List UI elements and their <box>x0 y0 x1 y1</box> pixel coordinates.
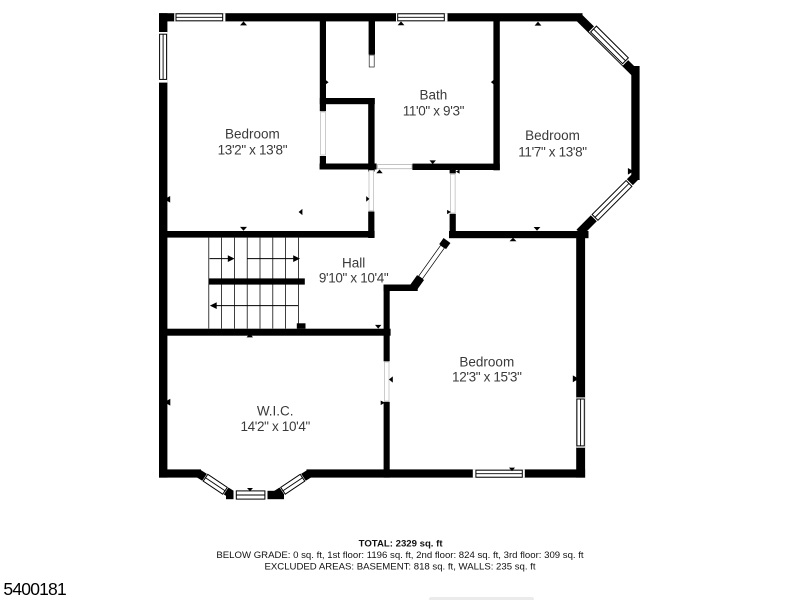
svg-text:W.I.C.: W.I.C. <box>257 403 294 418</box>
svg-text:12'3" x 15'3": 12'3" x 15'3" <box>452 370 522 385</box>
svg-text:Bedroom: Bedroom <box>225 126 280 141</box>
svg-text:11'0" x 9'3": 11'0" x 9'3" <box>403 103 465 118</box>
svg-text:Bedroom: Bedroom <box>459 355 514 370</box>
svg-text:Bedroom: Bedroom <box>525 128 580 143</box>
svg-text:11'7" x 13'8": 11'7" x 13'8" <box>518 145 587 160</box>
svg-text:BELOW GRADE: 0 sq. ft, 1st flo: BELOW GRADE: 0 sq. ft, 1st floor: 1196 s… <box>216 550 584 561</box>
svg-text:Hall: Hall <box>342 256 365 271</box>
svg-text:TOTAL: 2329 sq. ft: TOTAL: 2329 sq. ft <box>359 539 444 550</box>
svg-text:5400181: 5400181 <box>3 579 66 599</box>
svg-text:EXCLUDED AREAS: BASEMENT: 818: EXCLUDED AREAS: BASEMENT: 818 sq. ft, WA… <box>264 562 535 573</box>
svg-text:Bath: Bath <box>420 88 448 103</box>
svg-text:13'2" x 13'8": 13'2" x 13'8" <box>218 142 288 157</box>
svg-text:14'2" x 10'4": 14'2" x 10'4" <box>240 419 310 434</box>
svg-text:9'10" x 10'4": 9'10" x 10'4" <box>319 270 389 285</box>
